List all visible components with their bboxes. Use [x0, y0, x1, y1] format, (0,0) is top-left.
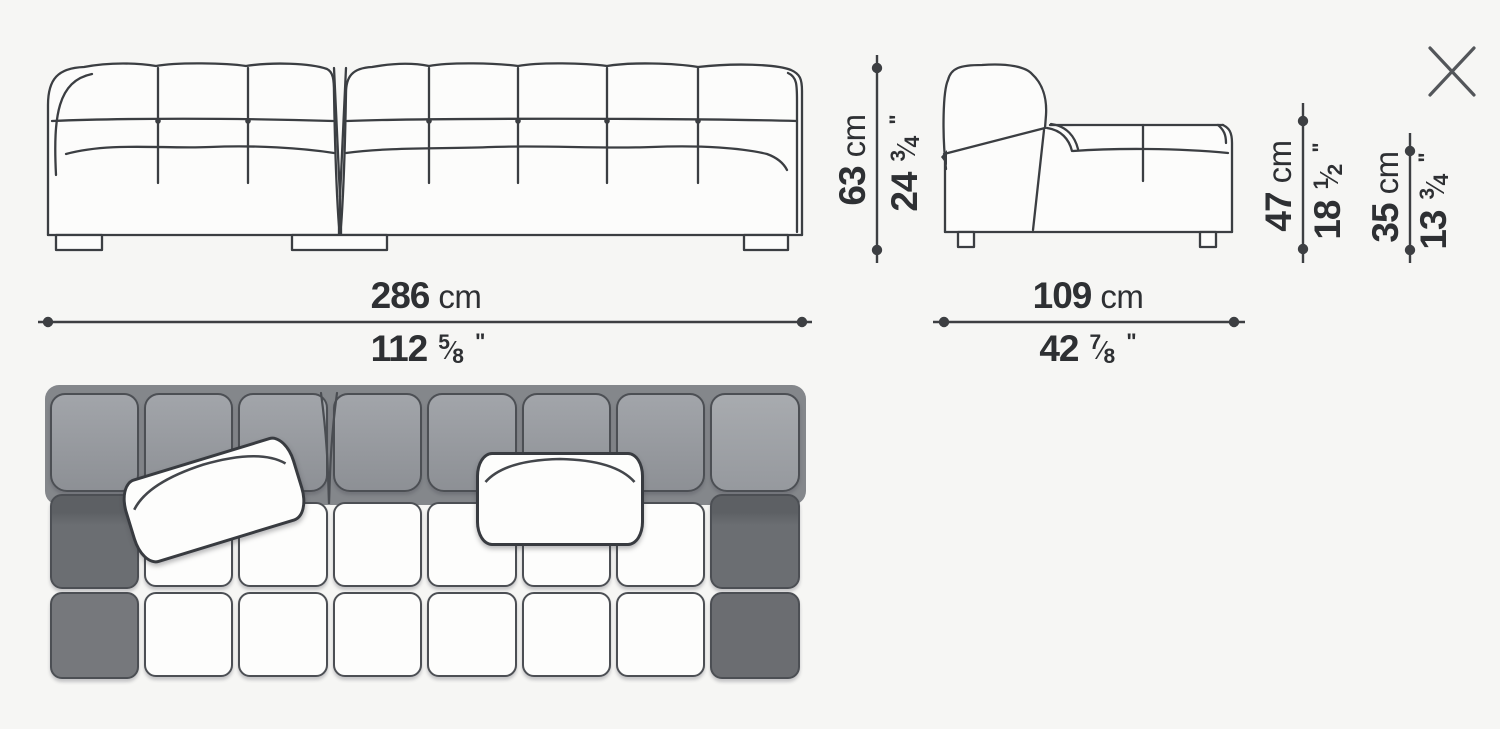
width-inch-label: 1125⁄8"	[371, 328, 486, 370]
close-button[interactable]	[1423, 43, 1481, 101]
seat-cushion	[522, 592, 611, 677]
side-view-drawing	[930, 53, 1245, 258]
module-split-seam	[318, 390, 340, 512]
seat-height-cm-label: 35 cm	[1365, 151, 1407, 242]
back-cushion	[333, 393, 422, 492]
width-cm-label: 286 cm	[371, 275, 482, 317]
back-height-cm-label: 47 cm	[1258, 140, 1300, 231]
back-height-inch-label: 181⁄2"	[1307, 142, 1349, 239]
height-cm-label: 63 cm	[832, 114, 874, 205]
seat-height-inch-label: 133⁄4"	[1413, 152, 1455, 249]
close-icon	[1423, 43, 1481, 101]
pillow-fold-line	[479, 455, 641, 485]
depth-inch-label: 427⁄8"	[1039, 328, 1136, 370]
back-cushion	[710, 393, 800, 492]
side-cushion-front	[50, 592, 139, 679]
plan-view-drawing	[48, 388, 803, 684]
seat-cushion	[333, 502, 422, 587]
seat-cushion	[238, 592, 328, 677]
seat-cushion	[427, 592, 517, 677]
seat-cushion	[616, 592, 705, 677]
front-view-drawing	[40, 55, 815, 255]
throw-pillow-right	[476, 452, 644, 546]
seat-cushion	[333, 592, 422, 677]
seat-cushion	[144, 592, 233, 677]
depth-cm-label: 109 cm	[1033, 275, 1144, 317]
side-cushion-front	[710, 592, 800, 679]
back-cushion	[50, 393, 139, 492]
dimension-diagram: 286 cm 1125⁄8" 109 cm 427⁄8" 63 cm 243⁄4…	[0, 0, 1500, 729]
height-inch-label: 243⁄4"	[884, 114, 926, 211]
side-cushion-mid	[710, 494, 800, 589]
